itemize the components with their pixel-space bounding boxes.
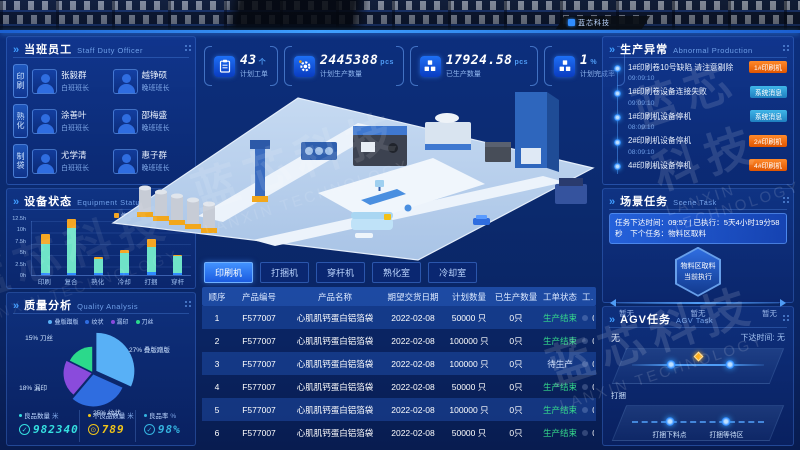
staff-name: 张毅群 xyxy=(61,69,89,81)
machine-right-unit[interactable] xyxy=(555,178,587,204)
machine-printing-press[interactable] xyxy=(353,126,407,166)
agv-issued-time: 下达时间: 无 xyxy=(741,332,785,343)
panel-quality-title: 质量分析 xyxy=(24,297,72,313)
rate-cell: 0% xyxy=(582,313,594,323)
quality-legend: 叠版蹭版纹状漏印刀丝 xyxy=(13,317,189,326)
progress-bar xyxy=(582,315,588,321)
agv-route-baling[interactable]: 打捆下料点打捆等待区 xyxy=(619,405,777,441)
agv-waypoint-dot[interactable] xyxy=(722,417,731,426)
kpi-value: 17924.58pcs xyxy=(446,53,528,68)
table-cell: 2022-02-08 xyxy=(382,382,444,392)
status-cell: 待生产 xyxy=(538,358,582,370)
y-tick-label: 2.5h xyxy=(15,262,26,268)
panel-options-icon[interactable] xyxy=(783,315,785,317)
legend-label: 纹状 xyxy=(91,317,103,326)
agv-current-task: 无 xyxy=(611,331,620,344)
timeline-dot-icon xyxy=(614,90,621,97)
staff-card[interactable]: 尤学清白班班长 xyxy=(32,149,109,174)
avatar xyxy=(32,109,57,134)
panel-abnormal: » 生产异常 Abnormal Production 1#印刷卷10号缺陷 请注… xyxy=(602,36,794,185)
abnormal-item[interactable]: 1#印刷卷10号缺陷 请注意剔除1#印刷机09:09:10 xyxy=(615,61,787,86)
table-cell: F577007 xyxy=(230,405,288,415)
progress-bar xyxy=(582,384,588,390)
status-cell: 生产结束 xyxy=(538,312,582,324)
machine-roller-unit[interactable] xyxy=(301,142,337,160)
x-tick-label: 冷却 xyxy=(118,276,131,286)
clipboard-icon xyxy=(214,56,235,77)
pie-label: 18% 漏印 xyxy=(19,383,47,392)
table-cell: 1 xyxy=(204,313,230,323)
legend-swatch xyxy=(111,320,115,324)
kpi-label: 计划生产数量 xyxy=(320,69,394,79)
kpi-row: 43个计划工单2445388pcs计划生产数量17924.58pcs已生产数量1… xyxy=(204,44,596,88)
legend-swatch xyxy=(48,320,52,324)
agv-route-current[interactable] xyxy=(619,348,777,384)
panel-abnormal-subtitle: Abnormal Production xyxy=(673,46,753,55)
kpi-value: 2445388pcs xyxy=(320,53,394,68)
timeline-dot-icon xyxy=(614,163,621,170)
pie-label: 27% 叠版蹭版 xyxy=(129,345,170,354)
status-cell: 生产结束 xyxy=(538,427,582,439)
table-cell: 100000 只 xyxy=(444,335,494,347)
bar-segment xyxy=(147,272,156,275)
machine-laminator[interactable] xyxy=(425,113,471,150)
table-cell: 心肌肌钙蛋白铝箔袋 xyxy=(288,312,382,324)
table-cell: F577007 xyxy=(230,428,288,438)
quality-pie-chart[interactable]: 27% 叠版蹭版25% 纹状18% 漏印15% 刀丝 xyxy=(13,326,193,418)
gear-icon xyxy=(294,56,315,77)
legend-label: 漏印 xyxy=(117,317,129,326)
boxes-icon xyxy=(554,56,575,77)
avatar xyxy=(32,69,57,94)
scene-current-task[interactable]: 物料区取料 当前执行 xyxy=(609,247,787,297)
stacked-bar[interactable] xyxy=(41,234,50,275)
chevron-icon: » xyxy=(609,195,615,209)
quality-stat: 良品率%✓98% xyxy=(135,410,191,442)
abnormal-time: 08:09:10 xyxy=(628,149,787,156)
factory-photo-banner: 蓝芯科技 xyxy=(0,0,800,30)
quality-stat: 良品数量米✓982340 xyxy=(11,410,79,442)
legend-swatch xyxy=(136,320,140,324)
agv-waypoint-dot[interactable] xyxy=(665,417,674,426)
progress-bar xyxy=(582,338,588,344)
abnormal-tag: 4#印刷机 xyxy=(749,159,787,171)
rate-value: 0% xyxy=(592,382,594,392)
table-row[interactable]: 3F577007心肌肌钙蛋白铝箔袋2022-02-08100000 只0只待生产… xyxy=(202,352,596,375)
rate-cell: 0% xyxy=(582,336,594,346)
abnormal-time: 09:09:10 xyxy=(628,100,787,107)
equipment-y-axis: 0h2.5h5h7.5h10h12.5h xyxy=(9,217,29,276)
table-cell: 50000 只 xyxy=(444,381,494,393)
table-header: 顺序产品编号产品名称期望交货日期计划数量已生产数量工单状态工单完成率 xyxy=(202,287,596,306)
status-cell: 生产结束 xyxy=(538,404,582,416)
chevron-icon: » xyxy=(13,299,19,313)
y-tick-label: 5h xyxy=(20,250,26,256)
table-cell: 4 xyxy=(204,382,230,392)
abnormal-item[interactable]: 1#印刷卷设备连接失败系统消息09:09:10 xyxy=(615,86,787,111)
table-cell: 2 xyxy=(204,336,230,346)
table-cell: 心肌肌钙蛋白铝箔袋 xyxy=(288,381,382,393)
panel-equipment-title: 设备状态 xyxy=(24,193,72,209)
panel-options-icon[interactable] xyxy=(185,301,187,303)
staff-role: 白班班长 xyxy=(61,163,89,173)
kpi-item-2: 2445388pcs计划生产数量 xyxy=(284,44,404,88)
abnormal-text: 1#印刷卷10号缺陷 请注意剔除 xyxy=(628,62,733,73)
agv-position-marker xyxy=(693,352,703,362)
staff-info: 涂善叶白班班长 xyxy=(61,109,89,133)
avatar xyxy=(32,149,57,174)
status-cell: 生产结束 xyxy=(538,335,582,347)
pie-label: 15% 刀丝 xyxy=(25,333,53,342)
table-cell: F577007 xyxy=(230,313,288,323)
panel-scene-subtitle: Scene Task xyxy=(673,198,717,207)
quality-stat: 不良品数量米⊙789 xyxy=(79,410,135,442)
x-tick-label: 复合 xyxy=(64,276,77,286)
y-tick-label: 7.5h xyxy=(15,239,26,245)
column-header: 期望交货日期 xyxy=(382,291,444,303)
table-row[interactable]: 6F577007心肌肌钙蛋白铝箔袋2022-02-0850000 只0只生产结束… xyxy=(202,421,596,444)
process-tag: 熟化 xyxy=(13,104,28,138)
rate-value: 0% xyxy=(592,359,594,369)
check-circle-icon: ✓ xyxy=(19,424,30,435)
process-tag: 印刷 xyxy=(13,64,28,98)
scene-slider[interactable] xyxy=(617,302,779,304)
abnormal-tag: 系统消息 xyxy=(750,110,787,122)
panel-options-icon[interactable] xyxy=(783,45,785,47)
table-cell: 2022-02-08 xyxy=(382,313,444,323)
legend-item: 纹状 xyxy=(85,317,103,326)
machine-dark-unit[interactable] xyxy=(485,142,511,162)
rate-cell: 0% xyxy=(582,382,594,392)
table-cell: 100000 只 xyxy=(444,358,494,370)
legend-label: 刀丝 xyxy=(142,317,154,326)
table-cell: F577007 xyxy=(230,359,288,369)
panel-scene-task: » 场景任务 Scene Task 任务下达时间：09:57 | 已执行：5天4… xyxy=(602,188,794,303)
abnormal-tag: 1#印刷机 xyxy=(749,61,787,73)
rate-cell: 0% xyxy=(582,359,594,369)
panel-quality-subtitle: Quality Analysis xyxy=(77,302,138,311)
header-divider xyxy=(0,30,800,33)
table-row[interactable]: 2F577007心肌肌钙蛋白铝箔袋2022-02-08100000 只0只生产结… xyxy=(202,329,596,352)
machine-tabs: 印刷机打捆机穿杆机熟化室冷却室 xyxy=(204,262,596,283)
status-cell: 生产结束 xyxy=(538,381,582,393)
table-cell: 2022-02-08 xyxy=(382,405,444,415)
check-circle-icon: ✓ xyxy=(144,424,155,435)
factory-3d-view[interactable] xyxy=(103,88,603,264)
table-row[interactable]: 4F577007心肌肌钙蛋白铝箔袋2022-02-0850000 只0只生产结束… xyxy=(202,375,596,398)
abnormal-text: 1#印刷机设备停机 xyxy=(628,111,691,122)
column-header: 产品编号 xyxy=(230,291,288,303)
table-cell: 0只 xyxy=(494,427,538,439)
chevron-icon: » xyxy=(609,313,615,327)
table-cell: 0只 xyxy=(494,312,538,324)
tab-印刷机[interactable]: 印刷机 xyxy=(204,262,253,283)
table-cell: 5 xyxy=(204,405,230,415)
table-cell: 0只 xyxy=(494,335,538,347)
tab-冷却室[interactable]: 冷却室 xyxy=(428,262,477,283)
kpi-unit: % xyxy=(590,59,597,66)
table-cell: 心肌肌钙蛋白铝箔袋 xyxy=(288,427,382,439)
progress-bar xyxy=(582,361,588,367)
column-header: 顺序 xyxy=(204,291,230,303)
y-tick-label: 12.5h xyxy=(12,216,26,222)
panel-agv-header: » AGV任务 AGV Task xyxy=(609,311,787,328)
kpi-value: 43个 xyxy=(240,53,268,68)
agv-waypoint-dot[interactable] xyxy=(725,360,734,369)
column-header: 计划数量 xyxy=(444,291,494,303)
tab-打捆机[interactable]: 打捆机 xyxy=(260,262,309,283)
panel-quality-header: » 质量分析 Quality Analysis xyxy=(13,297,189,314)
scene-task-name: 物料区取料 xyxy=(681,261,716,271)
agv-route-dashed-line xyxy=(632,421,765,423)
tab-穿杆机[interactable]: 穿杆机 xyxy=(316,262,365,283)
chevron-icon: » xyxy=(609,43,615,57)
quality-stat-label: 不良品数量米 xyxy=(88,410,135,420)
table-cell: 2022-02-08 xyxy=(382,428,444,438)
abnormal-list: 1#印刷卷10号缺陷 请注意剔除1#印刷机09:09:101#印刷卷设备连接失败… xyxy=(615,61,787,184)
bar-segment xyxy=(120,273,129,275)
quality-stat-value: 982340 xyxy=(33,423,79,436)
abnormal-text: 4#印刷机设备停机 xyxy=(628,160,691,171)
table-cell: 50000 只 xyxy=(444,312,494,324)
agv-status-row: 无 下达时间: 无 xyxy=(611,331,785,344)
rate-value: 0% xyxy=(592,313,594,323)
brand-logo: 蓝芯科技 xyxy=(560,16,646,29)
table-cell: 2022-02-08 xyxy=(382,336,444,346)
table-header-row: 顺序产品编号产品名称期望交货日期计划数量已生产数量工单状态工单完成率 xyxy=(202,287,596,306)
brand-logo-text: 蓝芯科技 xyxy=(578,18,610,28)
legend-item: 叠版蹭版 xyxy=(48,317,78,326)
x-tick-label: 熟化 xyxy=(91,276,104,286)
table-cell: 3 xyxy=(204,359,230,369)
bar-segment xyxy=(94,259,103,273)
kpi-label: 已生产数量 xyxy=(446,69,528,79)
staff-info: 尤学清白班班长 xyxy=(61,149,89,173)
panel-abnormal-title: 生产异常 xyxy=(620,41,668,57)
y-tick-label: 10h xyxy=(17,227,26,233)
abnormal-time: 08:09:10 xyxy=(628,124,787,131)
panel-staff-title: 当班员工 xyxy=(24,41,72,57)
kpi-unit: pcs xyxy=(514,59,528,66)
table-row[interactable]: 1F577007心肌肌钙蛋白铝箔袋2022-02-0850000 只0只生产结束… xyxy=(202,306,596,329)
panel-staff-header: » 当班员工 Staff Duty Officer xyxy=(13,41,189,58)
panel-quality: » 质量分析 Quality Analysis 叠版蹭版纹状漏印刀丝 27% 叠… xyxy=(6,292,196,446)
chevron-icon: » xyxy=(13,195,19,209)
legend-item: 漏印 xyxy=(111,317,129,326)
panel-scene-header: » 场景任务 Scene Task xyxy=(609,193,787,210)
bar-segment xyxy=(41,244,50,272)
table-cell: 50000 只 xyxy=(444,427,494,439)
kpi-label: 计划工单 xyxy=(240,69,268,79)
quality-stats: 良品数量米✓982340不良品数量米⊙789良品率%✓98% xyxy=(11,410,191,442)
abnormal-time: 09:09:10 xyxy=(628,75,787,82)
table-cell: F577007 xyxy=(230,382,288,392)
quality-stat-label: 良品数量米 xyxy=(19,410,79,420)
abnormal-item[interactable]: 2#印刷机设备停机2#印刷机08:09:10 xyxy=(615,135,787,160)
table-cell: 心肌肌钙蛋白铝箔袋 xyxy=(288,335,382,347)
dashboard: 蓝芯科技 蓝芯科技LANXIN TECHNOLOGY 蓝芯科技LANXIN TE… xyxy=(0,0,800,450)
process-tag: 制袋 xyxy=(13,144,28,178)
quality-stat-value: 98% xyxy=(158,423,181,436)
stacked-bar[interactable] xyxy=(94,257,103,275)
hexagon-badge: 物料区取料 当前执行 xyxy=(675,247,721,297)
column-header: 工单状态 xyxy=(538,291,582,303)
agv-stop-label: 打捆下料点 xyxy=(653,429,687,439)
quality-stat-label: 良品率% xyxy=(144,410,191,420)
staff-info: 张毅群白班班长 xyxy=(61,69,89,93)
rate-value: 0% xyxy=(592,336,594,346)
table-cell: 6 xyxy=(204,428,230,438)
staff-role: 白班班长 xyxy=(61,123,89,133)
bar-segment xyxy=(41,234,50,244)
panel-abnormal-header: » 生产异常 Abnormal Production xyxy=(609,41,787,58)
staff-name: 涂善叶 xyxy=(61,109,89,121)
x-tick-label: 打捆 xyxy=(144,276,157,286)
machine-tall-cabinet[interactable] xyxy=(515,92,559,172)
staff-card[interactable]: 张毅群白班班长 xyxy=(32,69,109,94)
staff-name: 尤学清 xyxy=(61,149,89,161)
scene-task-banner: 任务下达时间：09:57 | 已执行：5天4小时19分58秒 下个任务：物料区取… xyxy=(609,213,787,244)
column-header: 工单完成率 xyxy=(582,291,594,303)
timeline-dot-icon xyxy=(614,65,621,72)
panel-agv-subtitle: AGV Task xyxy=(676,316,713,325)
rate-value: 0% xyxy=(592,405,594,415)
rate-cell: 0% xyxy=(582,428,594,438)
quality-stat-value: 789 xyxy=(102,423,125,436)
bar-segment xyxy=(67,273,76,275)
abnormal-tag: 2#印刷机 xyxy=(749,135,787,147)
scene-task-state: 当前执行 xyxy=(684,272,712,282)
table-cell: 心肌肌钙蛋白铝箔袋 xyxy=(288,404,382,416)
table-cell: 0只 xyxy=(494,404,538,416)
bar-segment xyxy=(173,273,182,275)
abnormal-tag: 系统消息 xyxy=(750,86,787,98)
brand-logo-icon xyxy=(568,19,575,26)
panel-options-icon[interactable] xyxy=(783,197,785,199)
abnormal-text: 1#印刷卷设备连接失败 xyxy=(628,86,707,97)
x-tick-label: 印刷 xyxy=(38,276,51,286)
agv-route-line xyxy=(632,364,765,366)
column-header: 产品名称 xyxy=(288,291,382,303)
kpi-unit: 个 xyxy=(259,59,267,66)
rate-value: 0% xyxy=(592,428,594,438)
table-cell: 100000 只 xyxy=(444,404,494,416)
orders-table: 顺序产品编号产品名称期望交货日期计划数量已生产数量工单状态工单完成率 1F577… xyxy=(202,287,596,447)
kpi-item-1: 43个计划工单 xyxy=(204,44,278,88)
stacked-bar[interactable] xyxy=(67,219,76,275)
bar-segment xyxy=(67,228,76,273)
legend-swatch xyxy=(85,320,89,324)
staff-card[interactable]: 涂善叶白班班长 xyxy=(32,109,109,134)
bar-segment xyxy=(94,273,103,275)
kpi-unit: pcs xyxy=(380,59,394,66)
timeline-dot-icon xyxy=(614,114,621,121)
abnormal-text: 2#印刷机设备停机 xyxy=(628,135,691,146)
panel-staff-subtitle: Staff Duty Officer xyxy=(77,46,143,55)
table-cell: 0只 xyxy=(494,381,538,393)
panel-agv-task: » AGV任务 AGV Task 无 下达时间: 无 打捆 打捆下料点打捆等待区 xyxy=(602,306,794,446)
kpi-item-3: 17924.58pcs已生产数量 xyxy=(410,44,538,88)
panel-options-icon[interactable] xyxy=(185,45,187,47)
table-cell: F577007 xyxy=(230,336,288,346)
legend-label: 叠版蹭版 xyxy=(54,317,78,326)
y-tick-label: 0h xyxy=(20,273,26,279)
table-cell: 0只 xyxy=(494,358,538,370)
timeline-dot-icon xyxy=(614,139,621,146)
progress-bar xyxy=(582,407,588,413)
agv-waypoint-dot[interactable] xyxy=(667,360,676,369)
equipment-x-axis: 印刷复合熟化冷却打捆穿杆 xyxy=(31,276,191,286)
legend-item: 刀丝 xyxy=(136,317,154,326)
table-body: 1F577007心肌肌钙蛋白铝箔袋2022-02-0850000 只0只生产结束… xyxy=(202,306,596,444)
abnormal-item[interactable]: 4#印刷机设备停机4#印刷机 xyxy=(615,159,787,184)
panel-scene-title: 场景任务 xyxy=(620,193,668,209)
x-tick-label: 穿杆 xyxy=(171,276,184,286)
bar-segment xyxy=(67,219,76,228)
agv-stop-label: 打捆等待区 xyxy=(709,429,743,439)
staff-name: 越铮硕 xyxy=(142,69,170,81)
progress-bar xyxy=(582,430,588,436)
staff-role: 白班班长 xyxy=(61,83,89,93)
chevron-icon: » xyxy=(13,43,19,57)
rate-cell: 0% xyxy=(582,405,594,415)
table-cell: 2022-02-08 xyxy=(382,359,444,369)
bar-segment xyxy=(41,273,50,275)
target-circle-icon: ⊙ xyxy=(88,424,99,435)
table-cell: 心肌肌钙蛋白铝箔袋 xyxy=(288,358,382,370)
column-header: 已生产数量 xyxy=(494,291,538,303)
abnormal-item[interactable]: 1#印刷机设备停机系统消息08:09:10 xyxy=(615,110,787,135)
table-row[interactable]: 5F577007心肌肌钙蛋白铝箔袋2022-02-08100000 只0只生产结… xyxy=(202,398,596,421)
panel-agv-title: AGV任务 xyxy=(620,311,671,327)
agv-group-label: 打捆 xyxy=(611,390,785,401)
boxes-icon xyxy=(420,56,441,77)
tab-熟化室[interactable]: 熟化室 xyxy=(372,262,421,283)
